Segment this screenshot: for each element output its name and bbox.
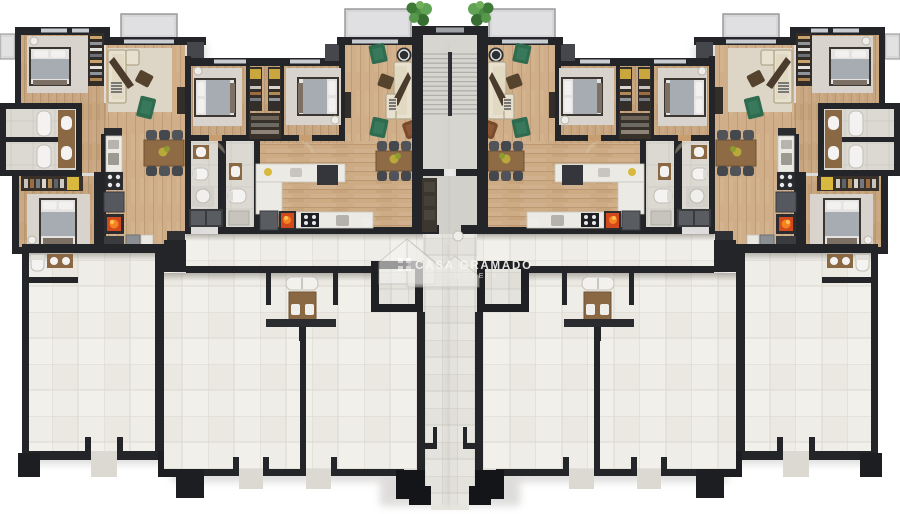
svg-text:IMÓVEIS: IMÓVEIS xyxy=(449,271,499,280)
svg-text:CASA GRAMADO: CASA GRAMADO xyxy=(415,260,533,272)
